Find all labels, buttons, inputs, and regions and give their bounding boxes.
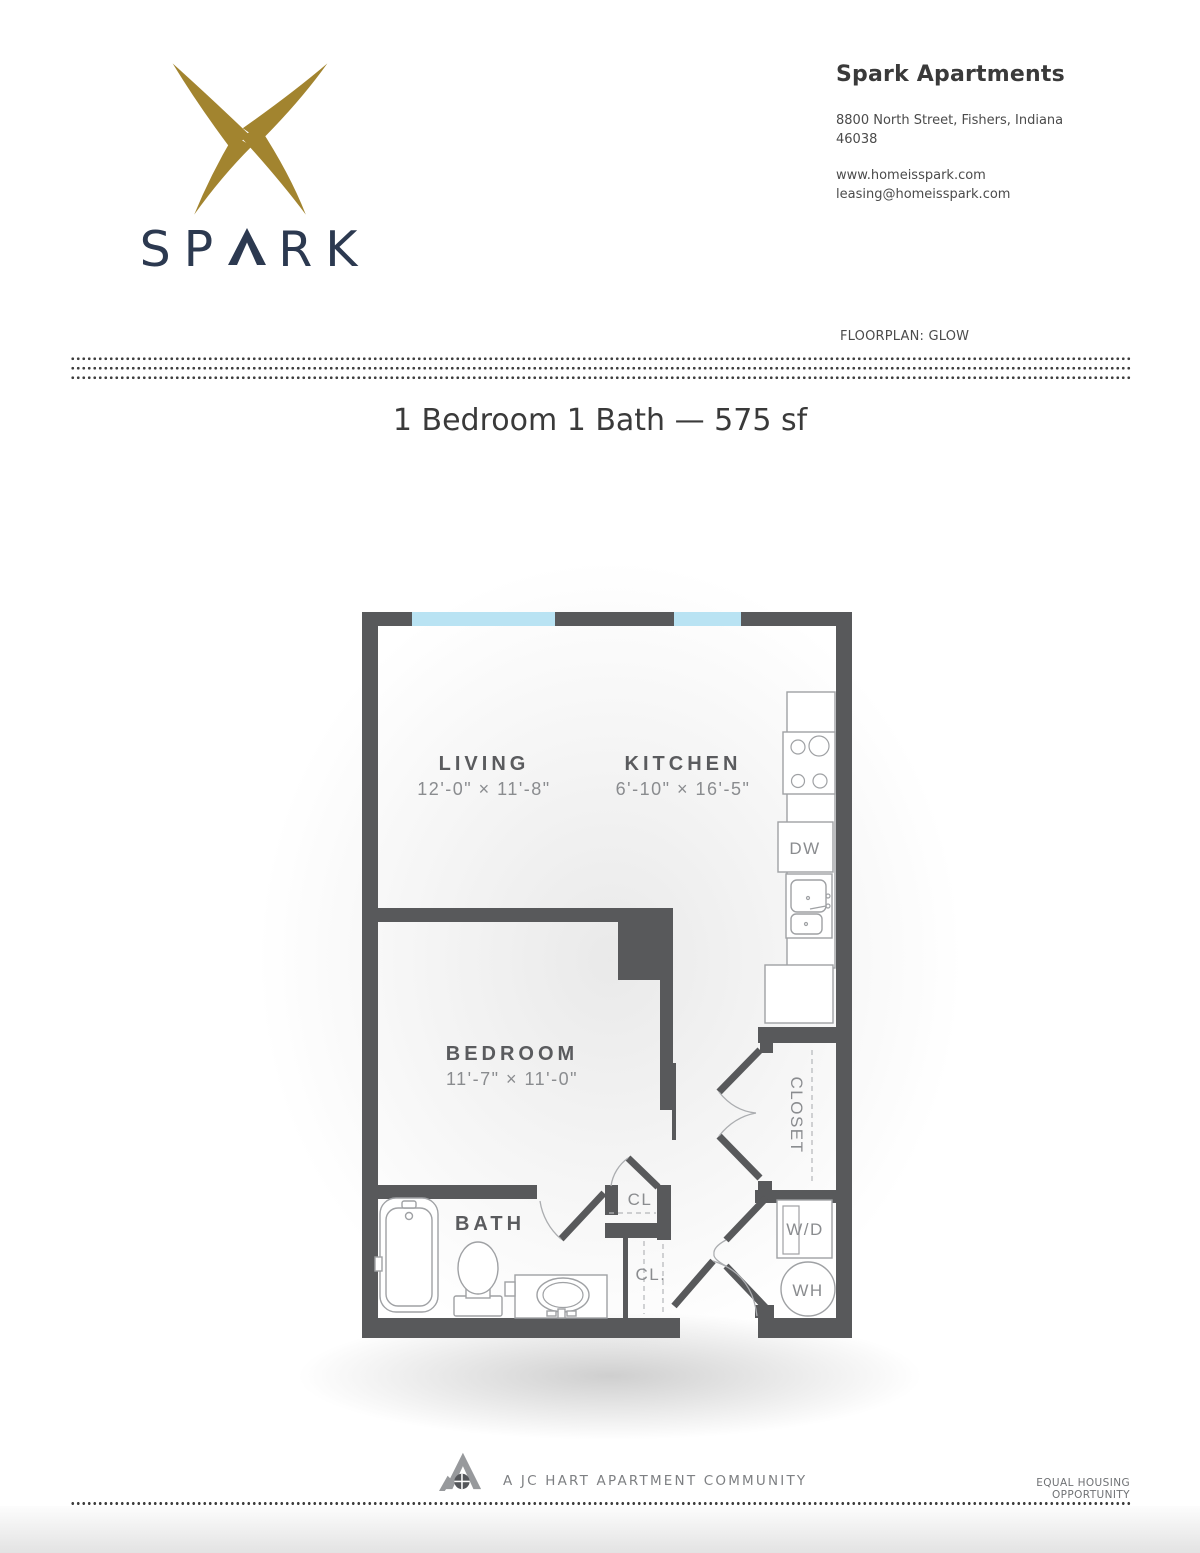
bedroom-dims: 11'-7" × 11'-0" xyxy=(446,1069,578,1089)
wd-door-lower xyxy=(726,1266,766,1308)
address-line-1: 8800 North Street, Fishers, Indiana xyxy=(836,111,1166,130)
wordmark-letters-rk: RK xyxy=(278,225,370,274)
entry-door xyxy=(674,1261,713,1306)
closet-door-upper xyxy=(719,1050,760,1092)
wordmark-caret-a-glyph xyxy=(226,224,268,273)
bedroom-door-leaf xyxy=(672,1063,676,1140)
floorplan-name-label: FLOORPLAN: GLOW xyxy=(840,329,969,344)
kitchen-label: KITCHEN xyxy=(625,753,742,775)
living-label: LIVING xyxy=(439,753,530,775)
bedroom-label: BEDROOM xyxy=(446,1043,578,1065)
spark-wordmark: SP RK xyxy=(118,224,392,274)
floorplan-drawing: LIVING 12'-0" × 11'-8" KITCHEN 6'-10" × … xyxy=(362,612,852,1338)
dotted-separator-bottom xyxy=(70,1496,1132,1506)
closet-door-lower xyxy=(719,1136,760,1178)
bathtub xyxy=(375,1198,438,1312)
cl-closet-door xyxy=(628,1158,658,1187)
property-name: Spark Apartments xyxy=(836,62,1166,87)
dotted-separator-top xyxy=(70,352,1132,380)
bath-door xyxy=(561,1193,604,1239)
window-living xyxy=(412,612,555,626)
wh-label: WH xyxy=(792,1281,823,1300)
cl-upper-label: CL xyxy=(628,1190,653,1209)
stove xyxy=(783,732,835,794)
header-contact-block: Spark Apartments 8800 North Street, Fish… xyxy=(836,62,1166,204)
toilet xyxy=(454,1242,502,1316)
spark-x-logo-icon xyxy=(153,58,347,220)
jc-hart-house-icon xyxy=(436,1447,486,1495)
bath-label: BATH xyxy=(455,1213,525,1235)
dw-label: DW xyxy=(789,839,820,858)
bath-vanity-sink xyxy=(505,1275,607,1318)
address-line-2: 46038 xyxy=(836,130,1166,149)
email-text: leasing@homeisspark.com xyxy=(836,185,1166,204)
wd-label: W/D xyxy=(786,1220,824,1239)
wd-door-upper xyxy=(726,1198,766,1240)
wordmark-letters-sp: SP xyxy=(140,225,227,274)
kitchen-sink xyxy=(786,874,832,938)
living-dims: 12'-0" × 11'-8" xyxy=(417,779,550,799)
refrigerator xyxy=(765,965,833,1023)
page-title: 1 Bedroom 1 Bath — 575 sf xyxy=(0,403,1200,438)
community-attribution: A JC HART APARTMENT COMMUNITY xyxy=(503,1473,807,1489)
kitchen-dims: 6'-10" × 16'-5" xyxy=(616,779,751,799)
page-bottom-gradient xyxy=(0,1506,1200,1553)
cl-lower-label: CL. xyxy=(636,1265,667,1284)
closet-label: CLOSET xyxy=(787,1076,806,1153)
website-text: www.homeisspark.com xyxy=(836,166,1166,185)
window-kitchen xyxy=(674,612,741,626)
